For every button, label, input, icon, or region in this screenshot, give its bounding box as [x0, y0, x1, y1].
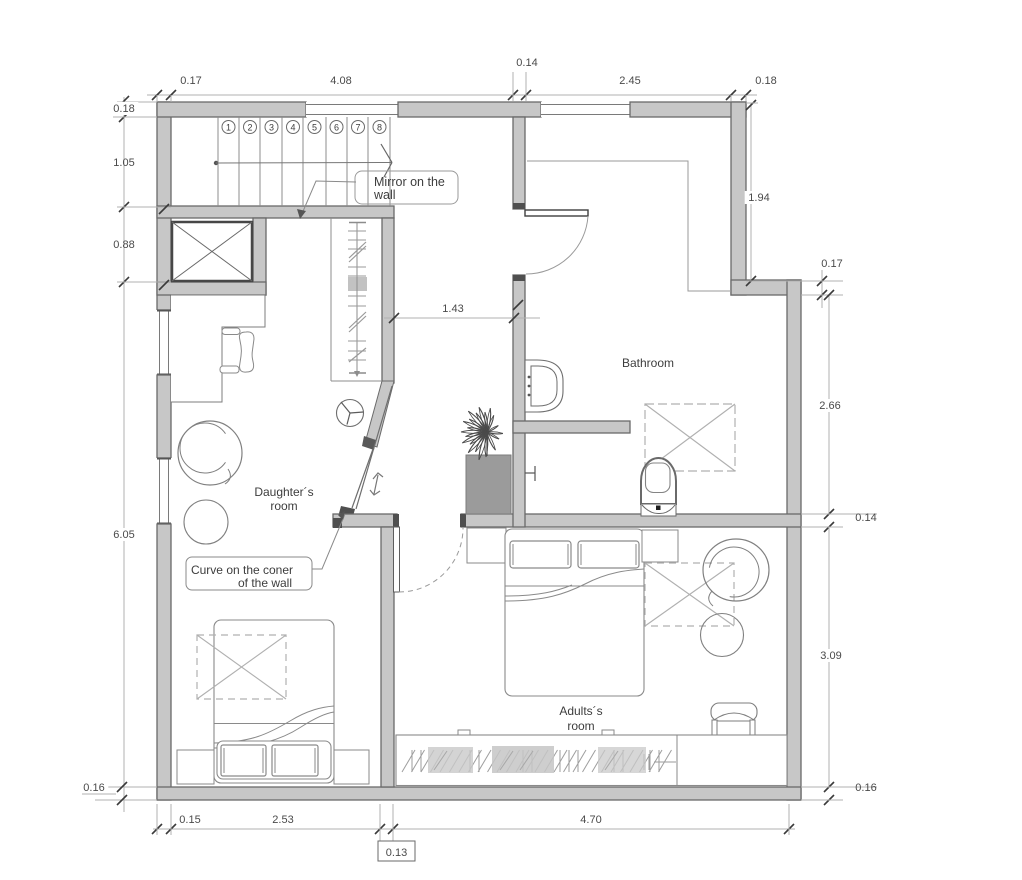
- svg-text:0.17: 0.17: [180, 75, 201, 87]
- svg-text:0.13: 0.13: [386, 847, 407, 859]
- svg-text:0.16: 0.16: [855, 782, 876, 794]
- svg-text:6: 6: [334, 122, 339, 132]
- svg-text:Bathroom: Bathroom: [622, 356, 674, 370]
- svg-text:room: room: [567, 719, 594, 733]
- svg-text:4: 4: [290, 122, 295, 132]
- svg-text:wall: wall: [373, 188, 396, 202]
- svg-text:Mirror on the: Mirror on the: [374, 175, 445, 189]
- svg-text:5: 5: [312, 122, 317, 132]
- svg-text:of the wall: of the wall: [238, 576, 292, 590]
- svg-text:4.70: 4.70: [580, 814, 601, 826]
- svg-text:4.08: 4.08: [330, 75, 351, 87]
- svg-text:2: 2: [247, 122, 252, 132]
- svg-text:0.17: 0.17: [821, 258, 842, 270]
- svg-text:room: room: [270, 499, 297, 513]
- svg-text:Adults´s: Adults´s: [559, 704, 602, 718]
- svg-text:3: 3: [269, 122, 274, 132]
- svg-text:Curve on the coner: Curve on the coner: [191, 563, 293, 577]
- svg-text:0.18: 0.18: [755, 75, 776, 87]
- svg-text:2.66: 2.66: [819, 400, 840, 412]
- svg-text:0.14: 0.14: [516, 57, 537, 69]
- svg-text:6.05: 6.05: [113, 529, 134, 541]
- svg-text:2.53: 2.53: [272, 814, 293, 826]
- svg-text:0.88: 0.88: [113, 239, 134, 251]
- svg-text:1.05: 1.05: [113, 157, 134, 169]
- svg-text:3.09: 3.09: [820, 650, 841, 662]
- svg-text:8: 8: [377, 122, 382, 132]
- svg-text:1: 1: [226, 122, 231, 132]
- svg-text:1.43: 1.43: [442, 303, 463, 315]
- svg-text:1.94: 1.94: [748, 192, 769, 204]
- svg-text:0.14: 0.14: [855, 512, 876, 524]
- svg-text:0.16: 0.16: [83, 782, 104, 794]
- svg-text:Daughter´s: Daughter´s: [254, 485, 313, 499]
- svg-text:0.15: 0.15: [179, 814, 200, 826]
- svg-text:2.45: 2.45: [619, 75, 640, 87]
- svg-text:0.18: 0.18: [113, 103, 134, 115]
- svg-text:7: 7: [355, 122, 360, 132]
